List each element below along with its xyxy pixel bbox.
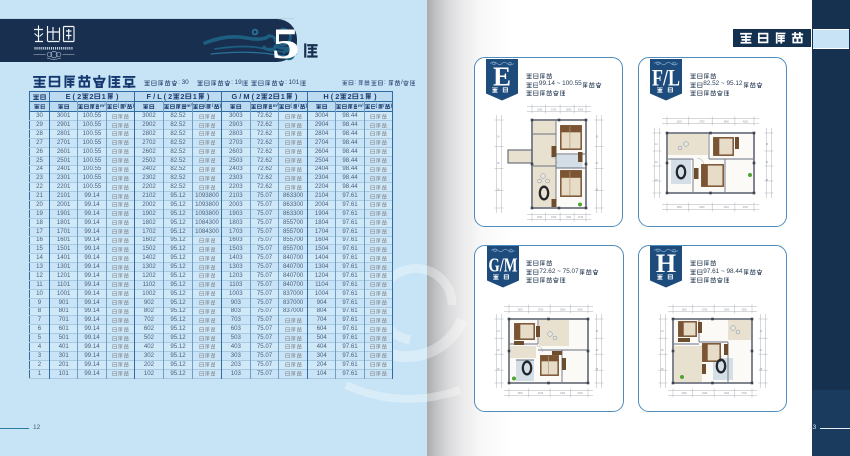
svg-text:4200: 4200	[578, 110, 584, 112]
svg-text:3540: 3540	[724, 310, 730, 312]
svg-text:2320: 2320	[702, 393, 708, 395]
svg-text:20: 20	[661, 350, 664, 352]
svg-text:20: 20	[497, 163, 500, 165]
svg-text:22: 22	[760, 350, 763, 352]
svg-text:3540: 3540	[560, 310, 566, 312]
svg-text:2700: 2700	[699, 122, 705, 124]
svg-text:14: 14	[497, 137, 500, 139]
svg-text:22: 22	[596, 350, 599, 352]
svg-text:22: 22	[766, 162, 769, 164]
svg-text:20: 20	[497, 350, 500, 352]
svg-text:1592: 1592	[682, 393, 688, 395]
svg-text:1592: 1592	[518, 393, 524, 395]
svg-text:3720: 3720	[742, 393, 748, 395]
svg-text:2320: 2320	[538, 393, 544, 395]
svg-text:1920: 1920	[677, 122, 683, 124]
svg-text:2700: 2700	[702, 310, 708, 312]
svg-text:2320: 2320	[551, 217, 557, 219]
svg-text:14: 14	[655, 144, 658, 146]
svg-text:22: 22	[596, 163, 599, 165]
svg-text:16: 16	[766, 144, 769, 146]
svg-text:3104: 3104	[724, 207, 730, 209]
svg-text:1592: 1592	[537, 217, 543, 219]
svg-text:3104: 3104	[560, 393, 566, 395]
svg-text:3720: 3720	[578, 217, 584, 219]
svg-text:16: 16	[760, 331, 763, 333]
svg-text:16: 16	[596, 137, 599, 139]
svg-text:1920: 1920	[537, 110, 543, 112]
svg-text:4200: 4200	[578, 310, 584, 312]
svg-text:3104: 3104	[724, 393, 730, 395]
svg-text:20: 20	[655, 162, 658, 164]
svg-text:2700: 2700	[538, 310, 544, 312]
svg-text:3720: 3720	[578, 393, 584, 395]
svg-text:1920: 1920	[518, 310, 524, 312]
svg-text:G/M: G/M	[488, 255, 517, 277]
svg-text:3540: 3540	[724, 122, 730, 124]
svg-text:14: 14	[661, 331, 664, 333]
svg-text:3540: 3540	[566, 110, 572, 112]
svg-text:16: 16	[596, 331, 599, 333]
svg-text:2700: 2700	[551, 110, 557, 112]
svg-text:4200: 4200	[742, 310, 748, 312]
svg-text:1592: 1592	[677, 207, 683, 209]
svg-text:14: 14	[497, 331, 500, 333]
svg-text:2320: 2320	[699, 207, 705, 209]
svg-text:4200: 4200	[743, 122, 749, 124]
svg-text:3104: 3104	[566, 217, 572, 219]
svg-text:1920: 1920	[682, 310, 688, 312]
svg-text:3720: 3720	[743, 207, 749, 209]
